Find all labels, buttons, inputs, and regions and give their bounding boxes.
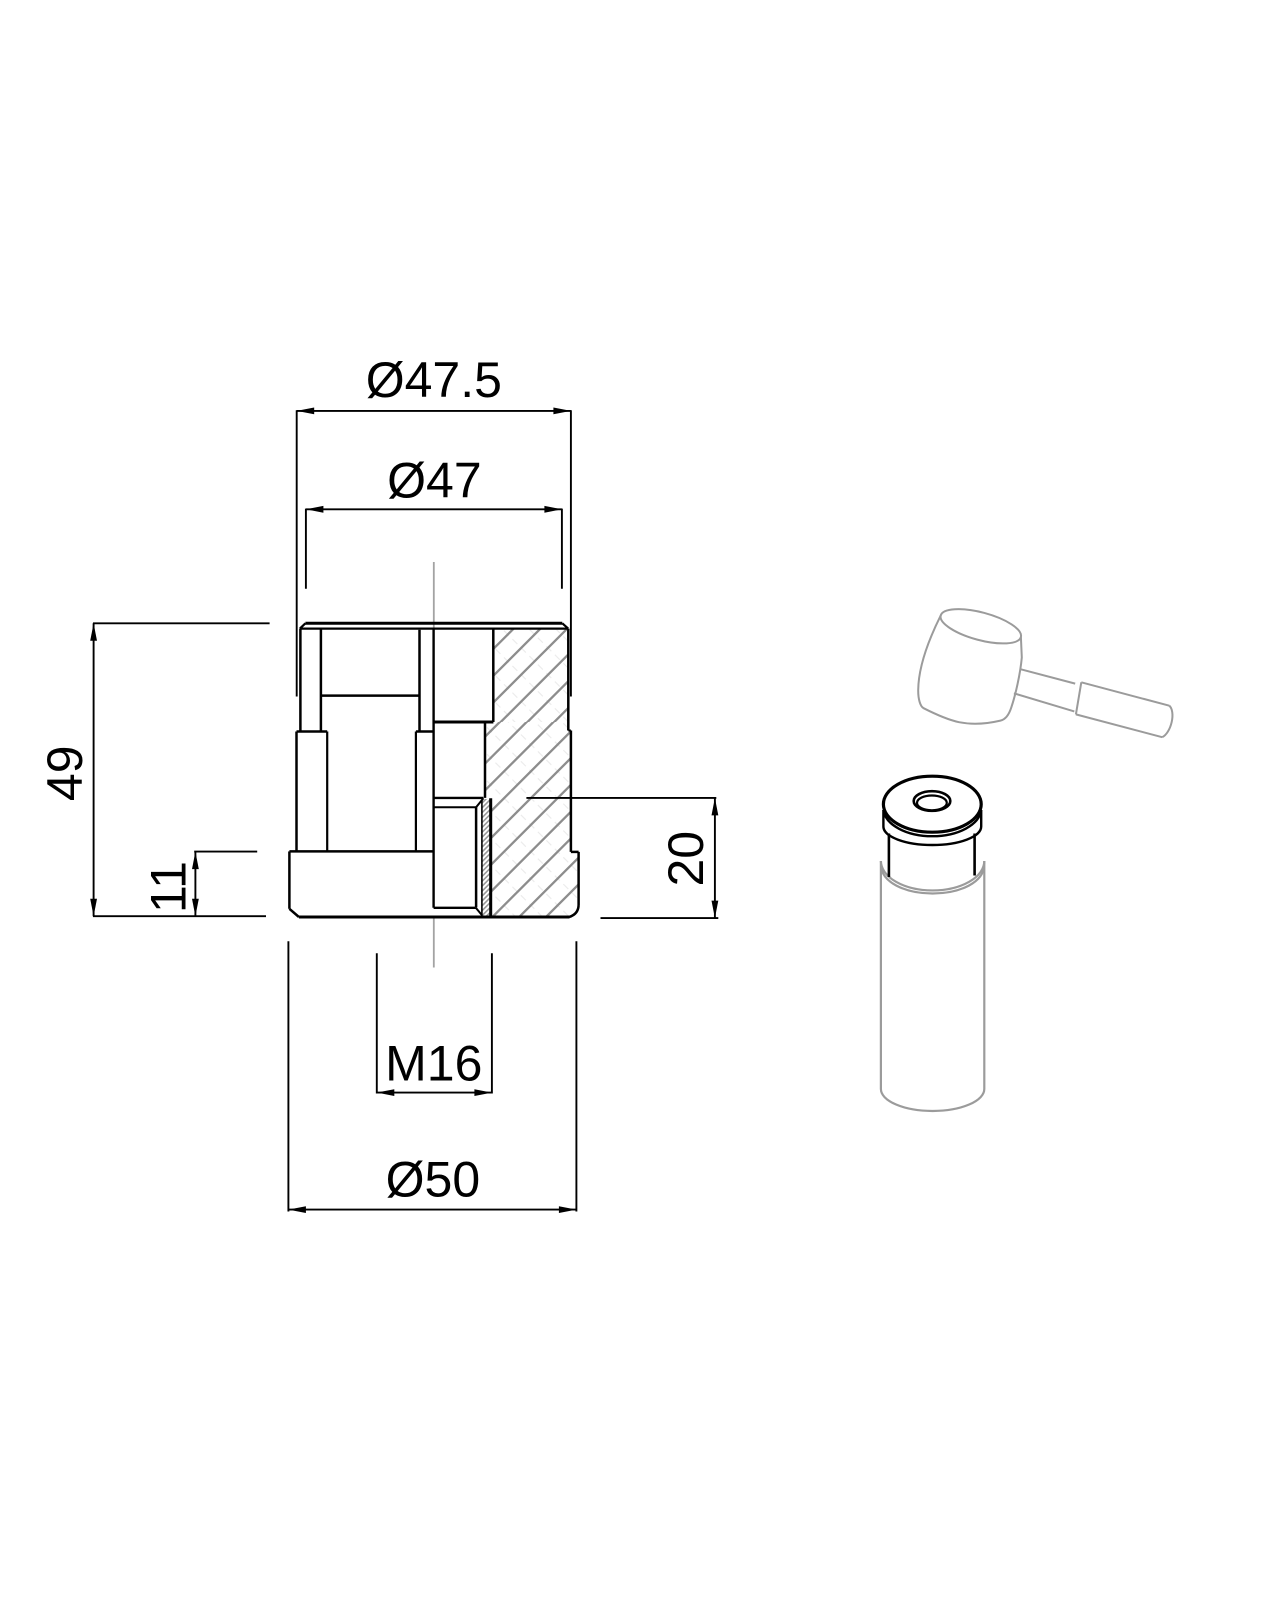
svg-text:Ø50: Ø50 <box>386 1152 481 1208</box>
svg-text:49: 49 <box>37 745 93 801</box>
svg-text:M16: M16 <box>385 1035 482 1091</box>
svg-text:20: 20 <box>658 831 714 887</box>
svg-text:Ø47.5: Ø47.5 <box>366 352 502 408</box>
svg-text:Ø47: Ø47 <box>387 453 482 509</box>
svg-text:11: 11 <box>140 861 196 913</box>
